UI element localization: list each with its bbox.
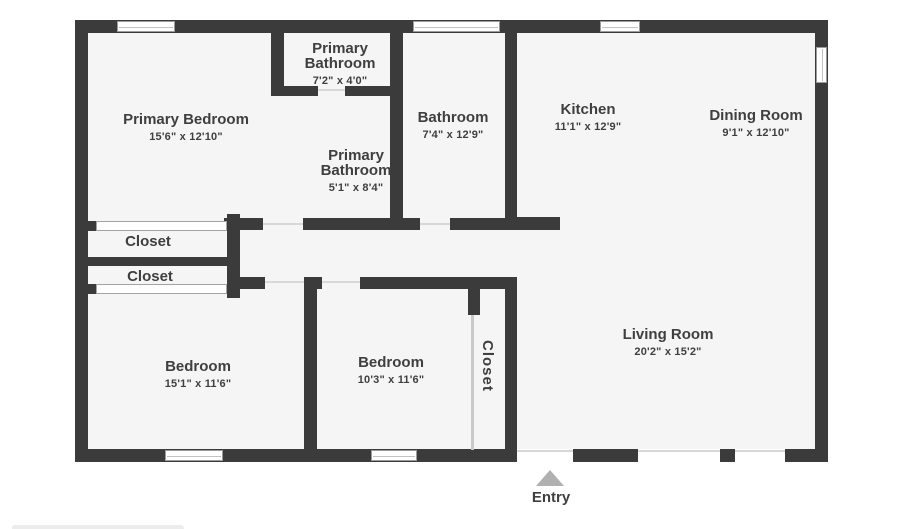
room-name: Bedroom [358,355,425,370]
door-bathroom [420,223,450,225]
wall-closet-middle [75,257,240,266]
wall-primary-bathroom-left [271,27,284,95]
living-room-opening-2-line [735,450,785,452]
room-name: Dining Room [709,108,802,123]
wall-bathroom-left [390,27,403,230]
wall-outer-left [75,20,88,462]
closet1-door-cap [88,221,96,231]
watermark [12,525,184,529]
entry-threshold-line [515,450,573,452]
wall-closet-right [227,214,240,298]
room-name: Primary Bedroom [123,112,249,127]
room-dims: 9'1" x 12'10" [709,127,802,139]
room-label-closet-bedroom2: Closet [479,340,496,392]
living-room-opening-1-line [638,450,720,452]
room-label-bathroom: Bathroom 7'4" x 12'9" [418,110,489,141]
room-name: Kitchen [555,102,622,117]
room-dims: 15'1" x 11'6" [165,378,232,390]
entry-label: Entry [532,489,570,506]
window-kitchen-top [600,21,640,32]
room-dims: 7'4" x 12'9" [418,129,489,141]
room-name: Primary Bathroom [310,148,402,178]
room-name: Closet [127,269,173,284]
entry-arrow-icon [536,470,564,486]
room-label-primary-bedroom: Primary Bedroom 15'6" x 12'10" [123,112,249,143]
wall-hall-top-2 [303,218,420,230]
room-name: Living Room [623,327,714,342]
window-bedroom2-bottom [371,450,417,461]
room-dims: 10'3" x 11'6" [358,374,425,386]
room-label-closet-2: Closet [127,269,173,284]
wall-living-room-left [505,277,517,462]
window-bathroom-top [413,21,500,32]
room-name: Closet [125,234,171,249]
window-primary-bedroom-top [117,21,175,32]
room-dims: 5'1" x 8'4" [310,182,402,194]
wall-hall-bottom-3 [360,277,506,289]
closet2-sliding-door [96,284,227,294]
wall-hall-top-3 [450,218,506,230]
closet2-door-cap [88,284,96,294]
room-name: Bathroom [418,110,489,125]
room-label-closet-1: Closet [125,234,171,249]
wall-outer-right [815,20,828,462]
door-bedroom2 [322,281,360,283]
door-primary-bathroom-upper [318,89,345,91]
door-primary-bedroom [263,223,303,225]
room-label-bedroom-1: Bedroom 15'1" x 11'6" [165,359,232,390]
room-label-primary-bathroom-upper: Primary Bathroom 7'2" x 4'0" [294,41,386,87]
wall-kitchen-stub [505,217,560,230]
wall-bedroom2-closet-partition [468,277,480,315]
wall-kitchen-left [505,27,517,230]
room-label-dining-room: Dining Room 9'1" x 12'10" [709,108,802,139]
room-dims: 11'1" x 12'9" [555,121,622,133]
window-bedroom1-bottom [165,450,223,461]
room-label-kitchen: Kitchen 11'1" x 12'9" [555,102,622,133]
room-label-bedroom-2: Bedroom 10'3" x 11'6" [358,355,425,386]
room-name: Bedroom [165,359,232,374]
wall-primary-bathroom-bottom-left [271,86,318,96]
closet1-sliding-door [96,221,227,231]
room-label-living-room: Living Room 20'2" x 15'2" [623,327,714,358]
room-label-primary-bathroom-lower: Primary Bathroom 5'1" x 8'4" [310,148,402,194]
floor-plan: Primary Bedroom 15'6" x 12'10" Primary B… [0,0,900,529]
room-dims: 20'2" x 15'2" [623,346,714,358]
wall-hall-bottom-1 [240,277,265,289]
door-bedroom1 [265,281,304,283]
window-dining-right [816,47,827,83]
room-dims: 7'2" x 4'0" [294,75,386,87]
wall-bedroom2-left [304,277,317,462]
room-name: Primary Bathroom [294,41,386,71]
door-bedroom2-closet [471,315,474,450]
floor-area [80,26,822,456]
room-dims: 15'6" x 12'10" [123,131,249,143]
